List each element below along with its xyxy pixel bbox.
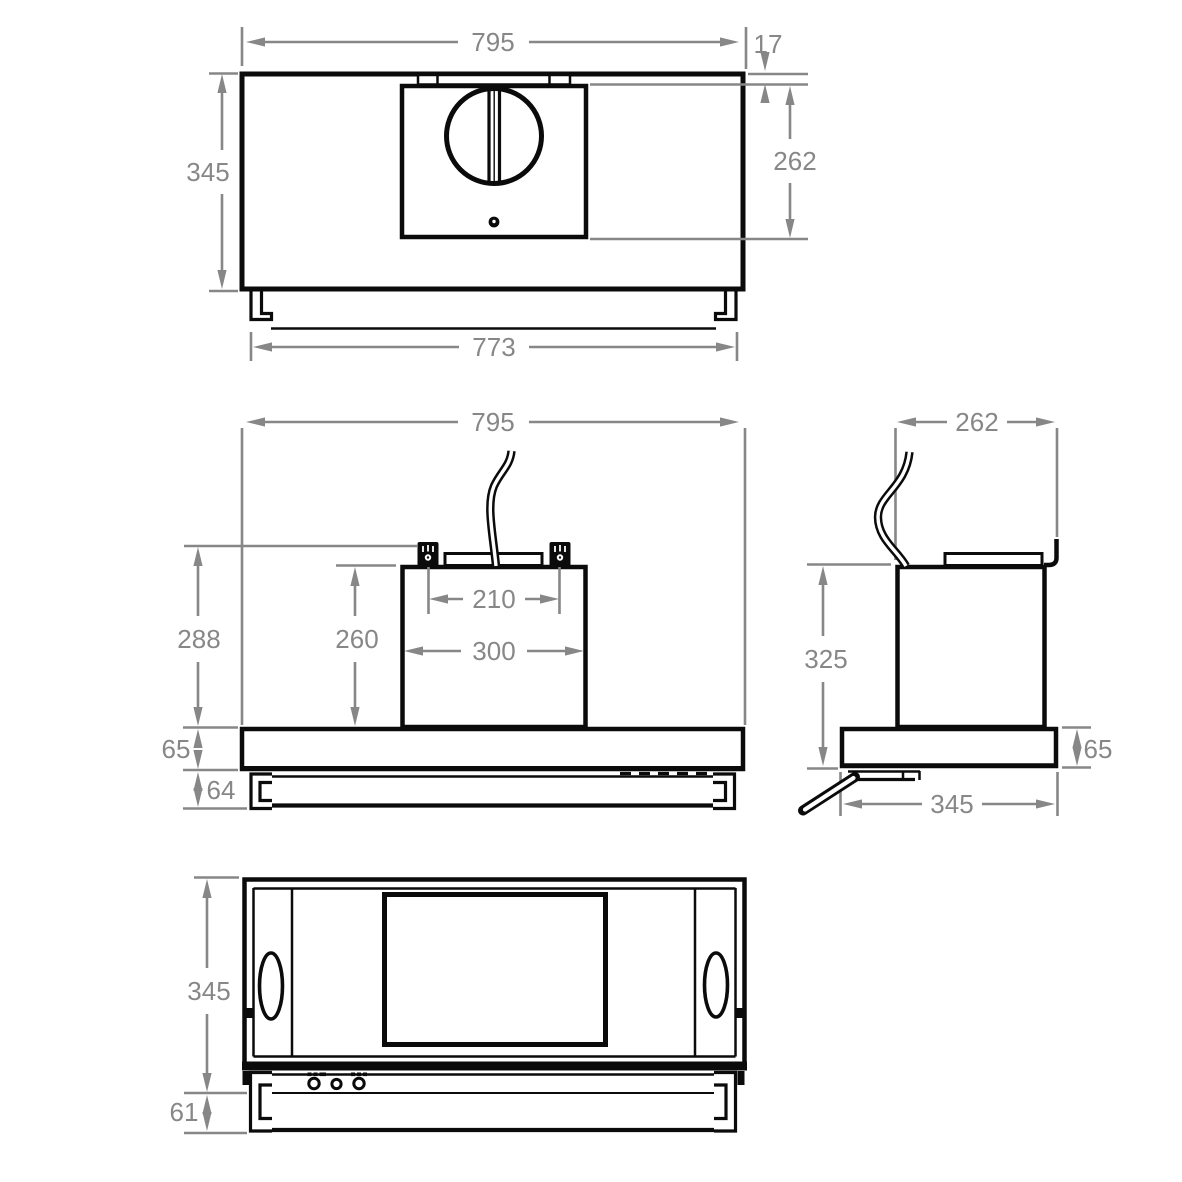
hood-body-side: [842, 729, 1056, 766]
mounting-foot-right: [716, 291, 737, 320]
grease-filter-panel: [385, 895, 606, 1045]
top-depth-label: 345: [186, 157, 229, 187]
top-motorbox-label: 262: [773, 146, 816, 176]
indicator-dot: [357, 1073, 361, 1077]
bar-end-tab-left: [243, 1071, 250, 1085]
rear-collar-plate: [418, 75, 570, 85]
indicator-dot: [363, 1073, 367, 1077]
bottom-view: [242, 880, 747, 1132]
fan-button-2[interactable]: [354, 1078, 364, 1088]
side-bodyheight-label: 65: [1084, 734, 1113, 764]
visor-bracket-right: [713, 774, 735, 809]
top-rear-offset-label: 17: [754, 29, 783, 59]
top-width-label: 795: [471, 27, 514, 57]
power-cable-side: [878, 452, 910, 566]
side-view: [842, 539, 1057, 780]
bottom-depth-label: 345: [187, 976, 230, 1006]
light-lens-left: [260, 953, 283, 1019]
latch-right: [735, 1008, 745, 1018]
indicator-dot: [351, 1073, 355, 1077]
light-lens-right: [705, 953, 728, 1017]
indicator-dot: [314, 1073, 318, 1077]
duct-housing-side: [898, 567, 1045, 727]
power-cable-front: [490, 451, 511, 566]
technical-drawing: 795 17 345 262 773 795 288 260 210 300 6…: [0, 0, 1182, 1182]
light-button[interactable]: [332, 1079, 341, 1088]
visor-bracket-left: [251, 774, 272, 809]
front-width-label: 795: [471, 407, 514, 437]
visor-bracket-left-bottom: [251, 1073, 273, 1132]
mounting-foot-left: [251, 291, 272, 320]
mounting-plate-side: [945, 554, 1042, 566]
indicator-dot: [308, 1073, 312, 1077]
top-mounting-label: 773: [472, 332, 515, 362]
top-view: [242, 74, 743, 329]
side-ductdepth-label: 262: [955, 407, 998, 437]
latch-left: [243, 1008, 253, 1018]
front-view: [242, 542, 743, 809]
front-visorheight-label: 64: [207, 775, 236, 805]
front-ductwidth-label: 300: [472, 636, 515, 666]
wall-hook: [1044, 539, 1057, 565]
fan-button-1[interactable]: [309, 1078, 319, 1088]
hanging-hook-left: [418, 542, 439, 566]
bottom-visor-label: 61: [170, 1097, 199, 1127]
front-hookspacing-label: 210: [472, 584, 515, 614]
side-height-label: 325: [804, 644, 847, 674]
bar-end-tab-right: [738, 1071, 745, 1085]
visor-bracket-right-bottom: [714, 1073, 736, 1132]
front-hookheight-label: 288: [177, 624, 220, 654]
drawing-canvas: 795 17 345 262 773 795 288 260 210 300 6…: [0, 0, 1182, 1182]
side-bodydepth-label: 345: [930, 789, 973, 819]
visor-handle-rod[interactable]: [803, 777, 855, 811]
indicator-dash: [320, 1073, 327, 1077]
front-bodyheight-label: 65: [162, 734, 191, 764]
hood-body-front: [242, 729, 743, 769]
hanging-hook-right: [550, 542, 571, 566]
front-ductheight-label: 260: [335, 624, 378, 654]
